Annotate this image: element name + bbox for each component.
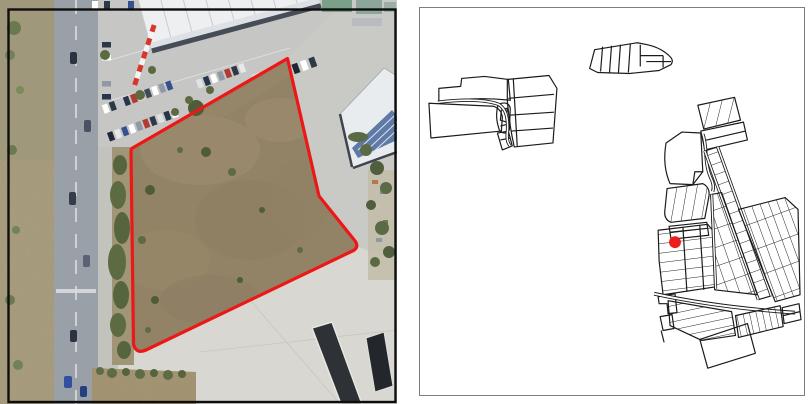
parking-tree — [100, 50, 110, 60]
parking-tree — [171, 108, 179, 116]
parking-tree — [148, 66, 156, 74]
location-marker-dot — [669, 236, 681, 248]
crosswalk — [56, 289, 96, 293]
cadastral-map — [420, 8, 803, 394]
cadastral-map-panel — [419, 7, 805, 396]
parking-tree — [206, 86, 214, 94]
field-bottom-left — [92, 367, 196, 404]
aerial-photo-panel — [0, 0, 397, 404]
aerial-photo — [0, 0, 397, 404]
figure-two-panel — [0, 0, 812, 404]
road — [54, 0, 98, 404]
parking-tree — [135, 90, 145, 100]
